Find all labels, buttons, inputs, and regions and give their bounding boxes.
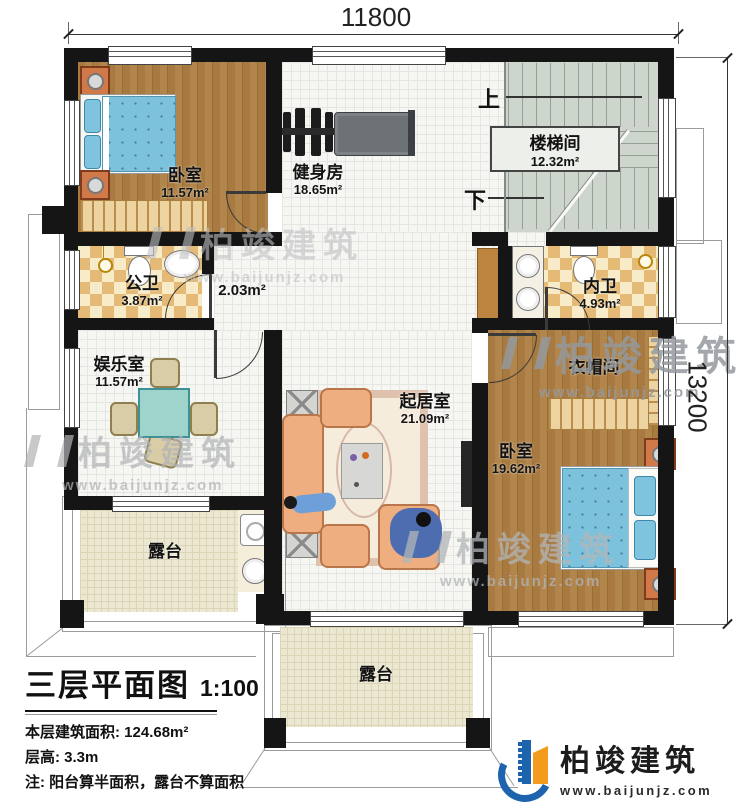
title-underline: [25, 710, 217, 712]
wall-entertainment-right: [264, 330, 282, 625]
wardrobe-icon: [80, 200, 208, 232]
right-bay-outline-bath: [676, 240, 722, 324]
brand-website: www.baijunjz.com: [560, 783, 712, 798]
room-label-privatebath: 内卫 4.93m²: [579, 277, 620, 311]
pillow-icon: [84, 135, 101, 169]
wall-living-bedroom2-upper: [472, 330, 488, 333]
nightstand-icon: [80, 66, 110, 96]
hallway-floor: [214, 232, 498, 330]
window-left-bedroom1: [64, 100, 80, 186]
pendant-light-icon: [638, 254, 653, 269]
title-block: 三层平面图1:100 本层建筑面积: 124.68m² 层高: 3.3m 注: …: [25, 660, 345, 792]
window-top-bedroom1: [108, 46, 192, 65]
window-right-stair: [658, 98, 676, 198]
title-underline-2: [25, 714, 217, 715]
table-decor: [350, 454, 357, 461]
logo-tower-blue: [518, 740, 531, 784]
sofa-icon: [282, 414, 324, 534]
room-label-entertainment: 娱乐室 11.57m²: [94, 355, 145, 389]
room-label-terrace-bottom: 露台: [359, 665, 393, 685]
stair-entry-opening: [508, 232, 546, 246]
washer-door: [246, 522, 265, 541]
wall-publicbath-bottom: [64, 318, 214, 330]
floor-area-note: 本层建筑面积: 124.68m²: [25, 721, 345, 742]
wall-bedroom1-bottom: [64, 232, 282, 246]
dim-ext-right-top: [676, 57, 728, 58]
dimension-height-label: 13200: [682, 347, 713, 447]
table-decor: [362, 452, 369, 459]
dim-ext-right-bottom: [676, 624, 728, 625]
armchair-icon: [320, 524, 370, 568]
wall-left-jog: [42, 206, 66, 234]
pendant-light-icon: [98, 258, 113, 273]
window-top-gym: [312, 46, 446, 65]
stair-down-line: [488, 197, 544, 199]
chair-icon: [150, 358, 180, 388]
plan-title: 三层平面图: [25, 668, 190, 703]
stairwell-label-box: 楼梯间 12.32m²: [490, 126, 620, 172]
right-bay-outline-stair: [676, 128, 704, 244]
nightstand-icon: [80, 170, 110, 200]
person-head: [416, 512, 431, 527]
pillow-icon: [634, 520, 656, 560]
chair-icon: [190, 402, 218, 436]
chair-icon: [110, 402, 138, 436]
left-roof-diag: [26, 628, 63, 657]
window-left-publicbath: [64, 250, 80, 310]
floor-plan-canvas: 楼梯间 12.32m² 上 下 卧室 11.57m² 健身房 18.65m² 公…: [0, 0, 750, 803]
dimension-line-top: [68, 34, 678, 35]
baijun-logo: 柏竣建筑 www.baijunjz.com: [498, 734, 738, 796]
wall-bedroom1-right: [266, 62, 282, 193]
room-label-cloakroom: 衣帽间: [569, 358, 620, 378]
brand-name: 柏竣建筑: [560, 736, 712, 780]
dimension-width-label: 11800: [330, 2, 422, 33]
stair-treads-upper: [508, 63, 658, 127]
hallway-area-label: 2.03m²: [218, 282, 266, 299]
toilet-tank-icon: [124, 246, 154, 256]
game-table-icon: [138, 388, 190, 438]
room-label-terrace-left: 露台: [148, 542, 182, 562]
window-entertainment-terrace: [112, 496, 210, 512]
lamp-icon: [87, 73, 104, 90]
hall-cabinet-icon: [477, 248, 500, 320]
baijun-logo-mark-icon: [498, 738, 554, 794]
plan-scale: 1:100: [200, 675, 259, 701]
stair-up-label: 上: [478, 82, 500, 114]
sink-icon: [164, 250, 200, 278]
terrace-bottom-corner-post-b: [466, 718, 490, 748]
stairwell-label: 楼梯间: [530, 129, 581, 154]
dimension-line-right: [727, 58, 728, 625]
toilet-tank-icon: [570, 246, 598, 256]
left-roof-line-v: [26, 408, 27, 656]
table-decor: [354, 482, 359, 487]
wall-publicbath-right-stub: [202, 246, 214, 274]
terrace-left-corner-post-a: [60, 600, 84, 628]
room-label-gym: 健身房 18.65m²: [293, 163, 344, 197]
closet-rack-icon: [548, 398, 650, 430]
bed-duvet-icon: [102, 96, 176, 172]
pendant-cord: [103, 246, 104, 258]
room-label-bedroom1: 卧室 11.57m²: [161, 166, 209, 200]
workout-bench-pad-icon: [408, 110, 415, 156]
window-bedroom2-bottom: [518, 611, 644, 627]
person-head: [284, 496, 297, 509]
left-bay-outline: [28, 214, 60, 410]
terrace-note: 注: 阳台算半面积，露台不算面积: [25, 771, 345, 792]
workout-bench-icon: [334, 112, 412, 156]
room-label-publicbath: 公卫 3.87m²: [121, 274, 162, 308]
left-roof-line-h: [26, 656, 256, 657]
sink-icon: [516, 254, 540, 278]
wall-stair-bottom: [472, 232, 674, 246]
stair-up-line: [504, 96, 642, 98]
pillow-icon: [84, 99, 101, 133]
room-label-living: 起居室 21.09m²: [400, 392, 451, 426]
lamp-icon: [87, 177, 104, 194]
wall-living-bedroom2-lower: [472, 383, 488, 611]
bed-duvet-icon: [562, 468, 630, 568]
window-left-entertainment: [64, 348, 80, 428]
stair-down-label: 下: [464, 183, 486, 215]
sofa-seat-icon: [320, 388, 372, 428]
window-right-cloakroom: [658, 338, 676, 426]
stairwell-area: 12.32m²: [531, 154, 579, 169]
sink-icon: [516, 287, 540, 311]
bottom-right-roof-band: [488, 627, 674, 657]
coffee-table-icon: [341, 443, 383, 499]
window-right-privatebath: [658, 246, 676, 318]
floor-height-note: 层高: 3.3m: [25, 746, 345, 767]
pillow-icon: [634, 476, 656, 516]
window-living-terrace: [310, 611, 464, 627]
room-label-bedroom2: 卧室 19.62m²: [492, 442, 540, 476]
